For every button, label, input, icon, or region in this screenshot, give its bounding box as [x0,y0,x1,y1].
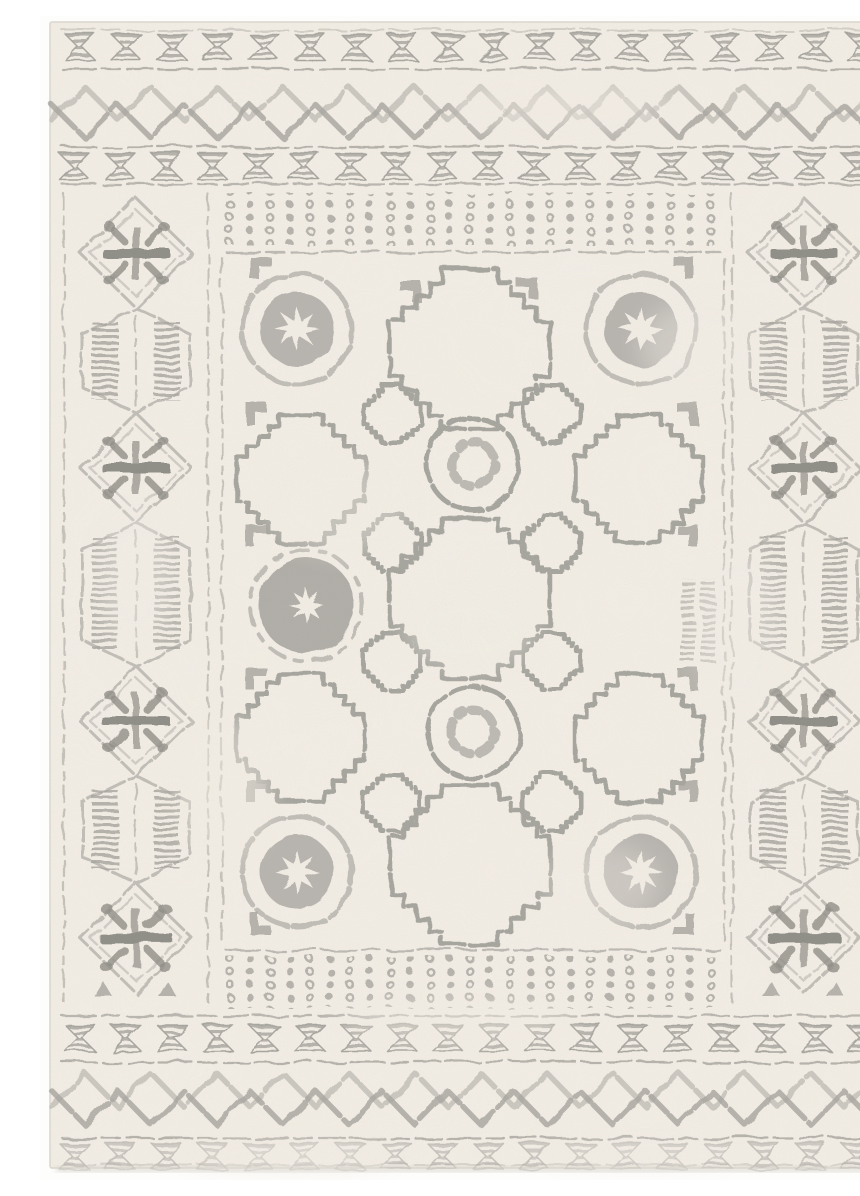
grain-texture [50,22,860,1168]
rug-photo [40,16,860,1180]
rug-photo-svg [40,16,860,1180]
rug-bottom-shadow [56,1166,860,1172]
